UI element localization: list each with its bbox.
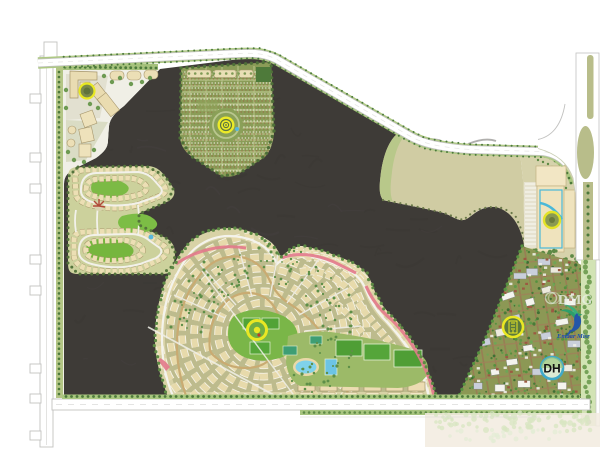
svg-text:DMG: DMG xyxy=(558,293,592,308)
svg-text:Emaar Misr: Emaar Misr xyxy=(556,333,590,340)
svg-text:DH: DH xyxy=(543,362,560,376)
